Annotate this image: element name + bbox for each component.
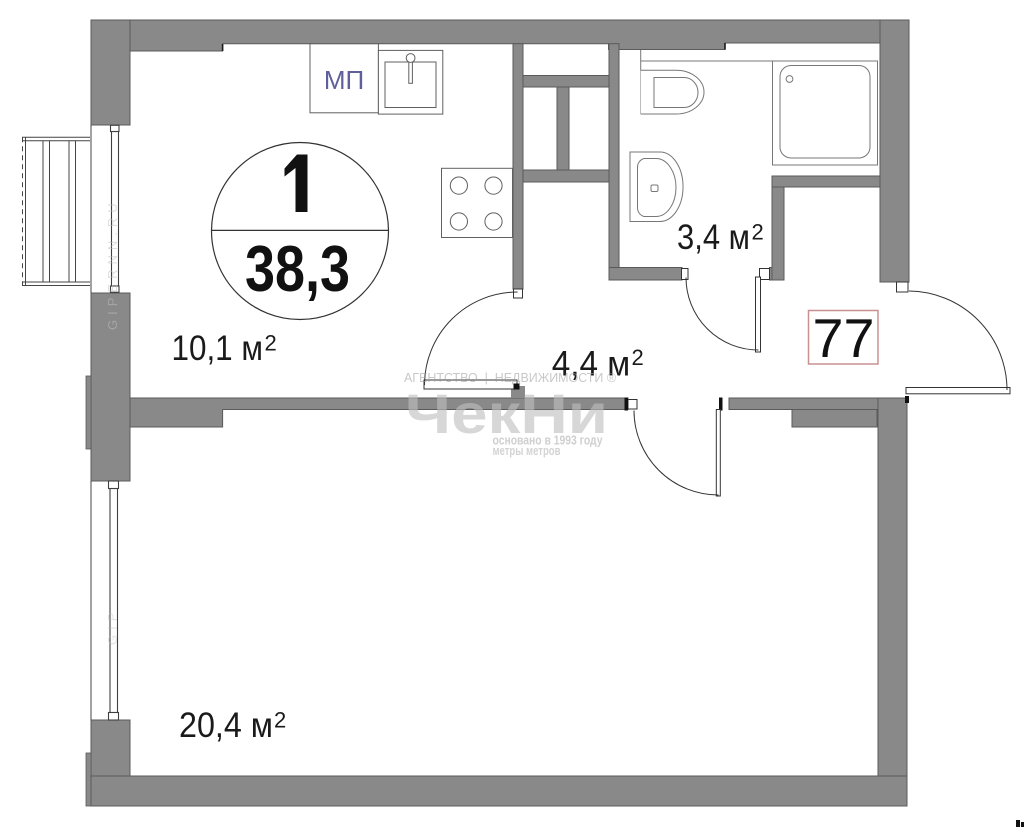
svg-text:метры метров: метры метров [493,444,561,458]
svg-text:GIPERNN.RU: GIPERNN.RU [105,198,120,330]
svg-text:2: 2 [265,331,277,356]
svg-text:2: 2 [752,220,764,245]
svg-text:3,4 м: 3,4 м [677,218,750,257]
svg-text:МП: МП [324,65,364,95]
svg-text:GIP: GIP [105,608,120,645]
svg-text:77: 77 [813,307,875,369]
svg-text:2: 2 [274,708,286,733]
svg-text:20,4 м: 20,4 м [179,706,273,745]
svg-text:10,1 м: 10,1 м [172,329,264,368]
svg-text:2: 2 [632,345,644,370]
svg-text:38,3: 38,3 [245,232,350,305]
